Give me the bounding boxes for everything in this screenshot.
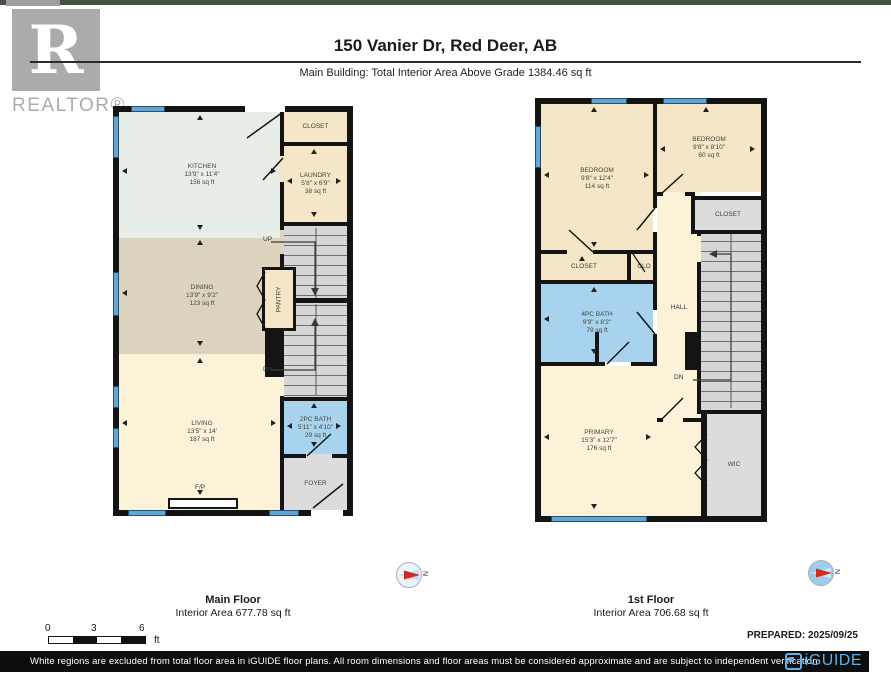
dimension-arrow: [197, 490, 203, 495]
first-floor-name: 1st Floor: [535, 594, 767, 606]
title-divider: [30, 61, 861, 63]
compass-main-floor: N: [395, 561, 435, 591]
iguide-icon: [785, 653, 802, 670]
realtor-wordmark: REALTOR®: [12, 95, 126, 117]
wall: [284, 142, 347, 146]
room-foyer: FOYER: [284, 458, 347, 510]
door-gap: [306, 454, 332, 458]
dimension-arrow: [122, 168, 127, 174]
room-kitchen: KITCHEN 13'9" x 11'4" 156 sq ft: [119, 112, 285, 238]
room-kitchen-dims: 13'9" x 11'4": [184, 171, 219, 179]
scale-bar: 0 3 6 ft: [46, 623, 216, 647]
room-living-area: 187 sq ft: [190, 436, 215, 444]
prepared-date: PREPARED: 2025/09/25: [747, 630, 858, 641]
room-bath-2pc-dims: 5'11" x 4'10": [298, 424, 333, 432]
stairs-dn-label: DN: [263, 366, 272, 373]
main-floor-area: Interior Area 677.78 sq ft: [113, 607, 353, 619]
dimension-arrow: [122, 420, 127, 426]
first-floor-plan: BEDROOM 9'8" x 12'4" 114 sq ft BEDROOM 9…: [535, 98, 767, 522]
iguide-logo: iGUIDE: [785, 652, 862, 670]
dimension-arrow: [336, 178, 341, 184]
dimension-arrow: [591, 107, 597, 112]
room-dining-name: DINING: [191, 284, 214, 292]
room-laundry: LAUNDRY 5'8" x 6'9" 38 sq ft: [284, 146, 347, 222]
wall: [691, 230, 761, 234]
wall: [541, 280, 657, 284]
room-bath-4pc-dims: 9'9" x 8'2": [583, 319, 611, 327]
dimension-arrow: [311, 212, 317, 217]
floorplan-page: R REALTOR® 150 Vanier Dr, Red Deer, AB M…: [0, 0, 891, 679]
window: [535, 126, 541, 168]
window: [113, 116, 119, 158]
dimension-arrow: [644, 172, 649, 178]
dimension-arrow: [287, 178, 292, 184]
dimension-arrow: [591, 349, 597, 354]
main-floor-caption: Main Floor Interior Area 677.78 sq ft: [113, 594, 353, 619]
dimension-arrow: [660, 146, 665, 152]
opening: [280, 230, 284, 254]
dimension-arrow: [591, 504, 597, 509]
room-pantry: PANTRY: [262, 267, 296, 331]
window: [269, 510, 299, 516]
dimension-arrow: [197, 358, 203, 363]
window: [591, 98, 627, 104]
compass-north-label: N: [833, 569, 840, 574]
room-wic-name: WIC: [728, 461, 741, 469]
dimension-arrow: [579, 256, 585, 261]
page-subtitle: Main Building: Total Interior Area Above…: [0, 67, 891, 79]
door-gap: [245, 106, 285, 112]
wall: [284, 397, 347, 401]
page-title: 150 Vanier Dr, Red Deer, AB: [0, 36, 891, 56]
room-bath-2pc-name: 2PC BATH: [300, 416, 331, 424]
scale-label-3: 3: [91, 623, 97, 634]
wall: [653, 192, 663, 196]
top-edge-strip: [0, 0, 891, 5]
dimension-arrow: [197, 115, 203, 120]
dimension-arrow: [271, 168, 276, 174]
room-primary: PRIMARY 15'3" x 12'7" 176 sq ft: [541, 366, 657, 516]
dimension-arrow: [271, 420, 276, 426]
stairs-dn-label-2: DN: [674, 374, 683, 381]
footer-disclaimer: White regions are excluded from total fl…: [30, 656, 820, 667]
room-laundry-name: LAUNDRY: [300, 172, 331, 180]
dimension-arrow: [544, 172, 549, 178]
room-pantry-name: PANTRY: [275, 286, 282, 312]
scale-segment: [121, 637, 145, 643]
door-gap: [280, 156, 284, 182]
room-bedroom-2-area: 80 sq ft: [698, 152, 719, 160]
wall: [541, 362, 605, 366]
room-bath-4pc-name: 4PC BATH: [581, 311, 612, 319]
dimension-arrow: [544, 434, 549, 440]
room-bedroom-1-name: BEDROOM: [580, 167, 614, 175]
dimension-arrow: [336, 423, 341, 429]
compass-first-floor: N: [807, 559, 847, 589]
room-living-dims: 13'5" x 14': [187, 428, 217, 436]
room-bedroom-2-name: BEDROOM: [692, 136, 726, 144]
room-kitchen-name: KITCHEN: [188, 163, 217, 171]
room-closet-top: CLOSET: [695, 200, 761, 230]
room-bedroom-2-dims: 9'8" x 8'10": [693, 144, 725, 152]
dimension-arrow: [591, 287, 597, 292]
dimension-arrow: [311, 442, 317, 447]
scale-segment: [97, 637, 121, 643]
top-edge-segment: [6, 0, 60, 6]
window: [113, 272, 119, 316]
scale-bar-segments: [48, 636, 146, 644]
room-bedroom-1-dims: 9'8" x 12'4": [581, 175, 613, 183]
dimension-arrow: [197, 240, 203, 245]
dimension-arrow: [703, 107, 709, 112]
window: [131, 106, 165, 112]
scale-segment: [73, 637, 97, 643]
compass-north-label: N: [421, 571, 428, 576]
room-living-name: LIVING: [191, 420, 212, 428]
room-laundry-dims: 5'8" x 6'9": [301, 180, 329, 188]
room-closet-left-name: CLOSET: [571, 263, 597, 271]
wall: [631, 362, 657, 366]
room-wic: WIC: [707, 414, 761, 516]
main-floor-name: Main Floor: [113, 594, 353, 606]
first-floor-area: Interior Area 706.68 sq ft: [535, 607, 767, 619]
room-closet-top-name: CLOSET: [715, 211, 741, 219]
room-foyer-name: FOYER: [304, 480, 326, 488]
iguide-wordmark: iGUIDE: [805, 652, 862, 670]
wall: [691, 200, 695, 230]
hall-label: HALL: [657, 304, 701, 311]
room-primary-area: 176 sq ft: [587, 445, 612, 453]
stairs-first-floor: [701, 232, 761, 410]
dimension-arrow: [750, 146, 755, 152]
dimension-arrow: [122, 290, 127, 296]
stairs-up-label: UP: [263, 236, 272, 243]
footer-bar: White regions are excluded from total fl…: [0, 651, 869, 672]
room-bedroom-1: BEDROOM 9'8" x 12'4" 114 sq ft: [541, 104, 653, 254]
room-bedroom-2: BEDROOM 9'8" x 8'10" 80 sq ft: [657, 104, 761, 192]
wall: [541, 250, 567, 254]
dimension-arrow: [544, 316, 549, 322]
wall: [593, 250, 657, 254]
first-floor-caption: 1st Floor Interior Area 706.68 sq ft: [535, 594, 767, 619]
opening: [697, 236, 701, 262]
dimension-arrow: [646, 434, 651, 440]
scale-label-0: 0: [45, 623, 51, 634]
opening: [280, 374, 284, 396]
window: [663, 98, 707, 104]
wall: [657, 418, 663, 422]
room-dining-dims: 13'9" x 9'2": [186, 292, 218, 300]
room-primary-dims: 15'3" x 12'7": [581, 437, 617, 445]
wall: [691, 196, 761, 200]
wall: [627, 254, 631, 280]
door-gap: [311, 510, 343, 516]
wall: [653, 232, 657, 310]
scale-segment: [49, 637, 73, 643]
room-bedroom-1-area: 114 sq ft: [585, 183, 609, 191]
window: [128, 510, 166, 516]
room-primary-name: PRIMARY: [584, 429, 614, 437]
fireplace: [168, 498, 238, 509]
room-closet-main: CLOSET: [284, 112, 347, 142]
room-kitchen-area: 156 sq ft: [190, 179, 215, 187]
dimension-arrow: [287, 423, 292, 429]
room-primary-ext: [657, 422, 707, 516]
room-laundry-area: 38 sq ft: [305, 188, 326, 196]
dimension-arrow: [311, 403, 317, 408]
wall: [701, 414, 707, 516]
window: [113, 386, 119, 408]
wall: [284, 222, 347, 226]
dimension-arrow: [591, 242, 597, 247]
main-floor-plan: KITCHEN 13'9" x 11'4" 156 sq ft DINING 1…: [113, 106, 353, 516]
wall-block: [685, 332, 701, 370]
room-dining: DINING 13'9" x 9'2" 123 sq ft: [119, 238, 285, 354]
window: [113, 428, 119, 448]
dimension-arrow: [197, 225, 203, 230]
room-closet-main-name: CLOSET: [302, 123, 328, 131]
room-dining-area: 123 sq ft: [190, 300, 215, 308]
room-clo-name: CLO: [637, 263, 650, 271]
wall: [595, 332, 599, 362]
dimension-arrow: [311, 149, 317, 154]
scale-unit: ft: [154, 635, 160, 646]
scale-label-6: 6: [139, 623, 145, 634]
dimension-arrow: [197, 341, 203, 346]
room-bath-2pc-area: 29 sq ft: [305, 432, 326, 440]
window: [551, 516, 647, 522]
